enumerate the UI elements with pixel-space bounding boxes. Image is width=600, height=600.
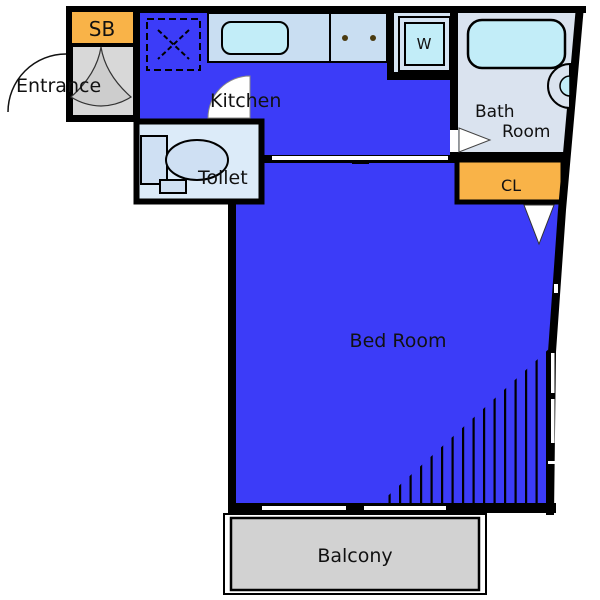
label-entrance: Entrance xyxy=(16,75,101,97)
bathtub xyxy=(468,20,565,68)
burner-dot xyxy=(370,35,376,41)
label-toilet: Toilet xyxy=(197,167,248,189)
floor-plan-canvas: SB Entrance Kitchen W Bath Room CL Toile… xyxy=(0,0,600,600)
wall-entrance-bottom xyxy=(66,115,140,122)
label-washer: W xyxy=(417,35,432,53)
bathroom-door-opening xyxy=(450,130,458,152)
balcony-sliding-door-right xyxy=(364,506,446,510)
kitchen-sink xyxy=(222,22,288,54)
wall-bedroom-left xyxy=(228,155,236,513)
wall-bathroom-bottom xyxy=(450,152,568,160)
balcony-sliding-door-left xyxy=(262,506,346,510)
label-balcony: Balcony xyxy=(317,545,392,567)
label-kitchen: Kitchen xyxy=(210,90,281,112)
sliding-door-kitchen-bedroom xyxy=(272,156,448,160)
window-lower xyxy=(551,399,555,443)
window-end-tick xyxy=(548,461,556,464)
label-bedroom: Bed Room xyxy=(350,330,447,352)
wall-washer-bottom xyxy=(387,72,458,80)
label-closet: CL xyxy=(501,176,521,195)
label-bath-line2: Room xyxy=(502,122,550,142)
window-small xyxy=(554,284,558,293)
wall-top xyxy=(66,6,586,13)
toilet-base xyxy=(160,180,186,193)
wall-bathroom-left xyxy=(450,6,458,132)
wall-washer-left xyxy=(387,6,394,80)
label-bath-line1: Bath xyxy=(475,102,515,122)
sliding-door-handle-tick xyxy=(352,160,369,164)
floor-plan: SB Entrance Kitchen W Bath Room CL Toile… xyxy=(0,0,600,600)
burner-dot xyxy=(342,35,348,41)
toilet-tank xyxy=(141,136,167,184)
window-upper xyxy=(551,353,555,393)
label-sb: SB xyxy=(89,17,115,41)
